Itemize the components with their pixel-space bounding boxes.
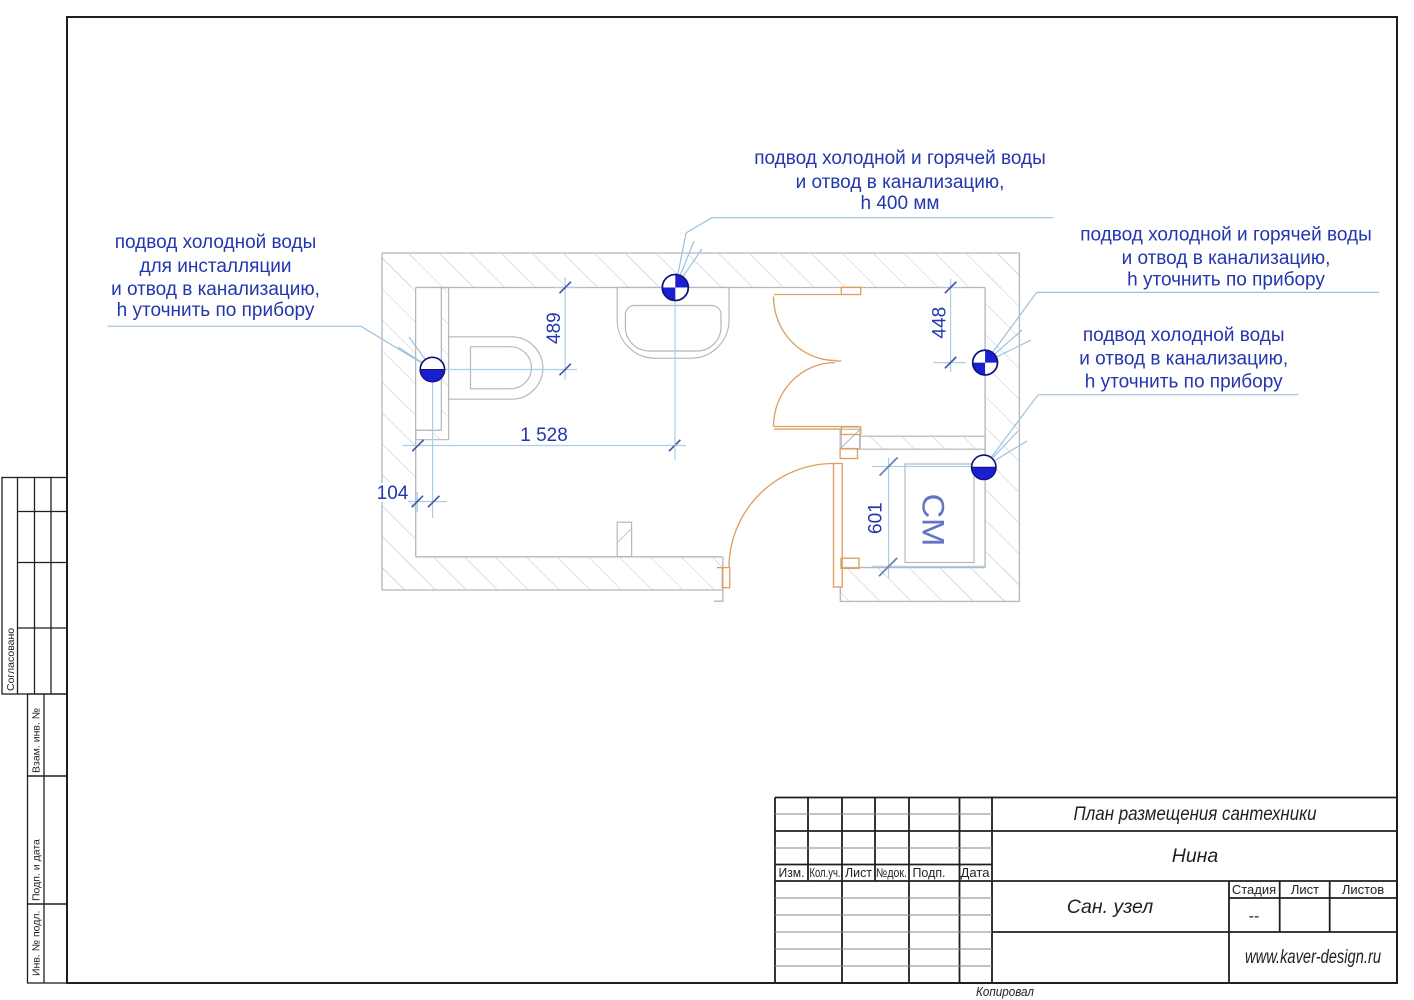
svg-text:и отвод в канализацию,: и отвод в канализацию,	[796, 172, 1005, 193]
svg-text:h уточнить по прибору: h уточнить по прибору	[117, 300, 315, 321]
svg-text:--: --	[1249, 908, 1260, 925]
svg-text:1 528: 1 528	[520, 425, 568, 446]
svg-text:№док.: №док.	[876, 866, 907, 880]
svg-text:подвод холодной и горячей воды: подвод холодной и горячей воды	[1080, 225, 1372, 246]
svg-text:СМ: СМ	[916, 494, 952, 547]
svg-text:104: 104	[377, 483, 409, 504]
svg-text:подвод холодной и горячей воды: подвод холодной и горячей воды	[754, 148, 1046, 169]
svg-text:и отвод в канализацию,: и отвод в канализацию,	[111, 279, 320, 300]
svg-text:Дата: Дата	[961, 866, 990, 880]
svg-text:Сан. узел: Сан. узел	[1067, 896, 1154, 918]
svg-text:601: 601	[866, 502, 887, 534]
svg-text:h уточнить по прибору: h уточнить по прибору	[1085, 371, 1283, 392]
svg-text:Кол.уч.: Кол.уч.	[810, 866, 841, 880]
svg-text:h уточнить по прибору: h уточнить по прибору	[1127, 270, 1325, 291]
svg-text:Стадия: Стадия	[1232, 882, 1276, 897]
svg-text:www.kaver-design.ru: www.kaver-design.ru	[1245, 946, 1381, 968]
svg-text:подвод холодной воды: подвод холодной воды	[115, 232, 317, 253]
svg-text:h 400 мм: h 400 мм	[861, 193, 940, 214]
svg-text:Подп.: Подп.	[913, 866, 946, 880]
svg-text:Взам. инв. №: Взам. инв. №	[31, 708, 43, 773]
svg-text:Инв. № подл.: Инв. № подл.	[31, 911, 43, 976]
svg-text:489: 489	[544, 312, 565, 344]
svg-text:Изм.: Изм.	[779, 866, 805, 880]
svg-text:Нина: Нина	[1172, 845, 1219, 867]
svg-text:Копировал: Копировал	[976, 985, 1034, 999]
svg-text:Подп. и дата: Подп. и дата	[31, 839, 43, 901]
svg-text:Согласовано: Согласовано	[5, 628, 17, 691]
svg-text:и отвод в канализацию,: и отвод в канализацию,	[1122, 248, 1331, 269]
svg-text:подвод холодной воды: подвод холодной воды	[1083, 325, 1285, 346]
svg-text:Лист: Лист	[1291, 882, 1319, 897]
svg-text:Листов: Листов	[1342, 882, 1384, 897]
svg-text:План размещения сантехники: План размещения сантехники	[1074, 803, 1317, 825]
svg-text:для инсталляции: для инсталляции	[140, 256, 292, 277]
svg-text:Лист: Лист	[845, 866, 872, 880]
svg-text:448: 448	[930, 307, 951, 339]
svg-text:и отвод в канализацию,: и отвод в канализацию,	[1079, 349, 1288, 370]
